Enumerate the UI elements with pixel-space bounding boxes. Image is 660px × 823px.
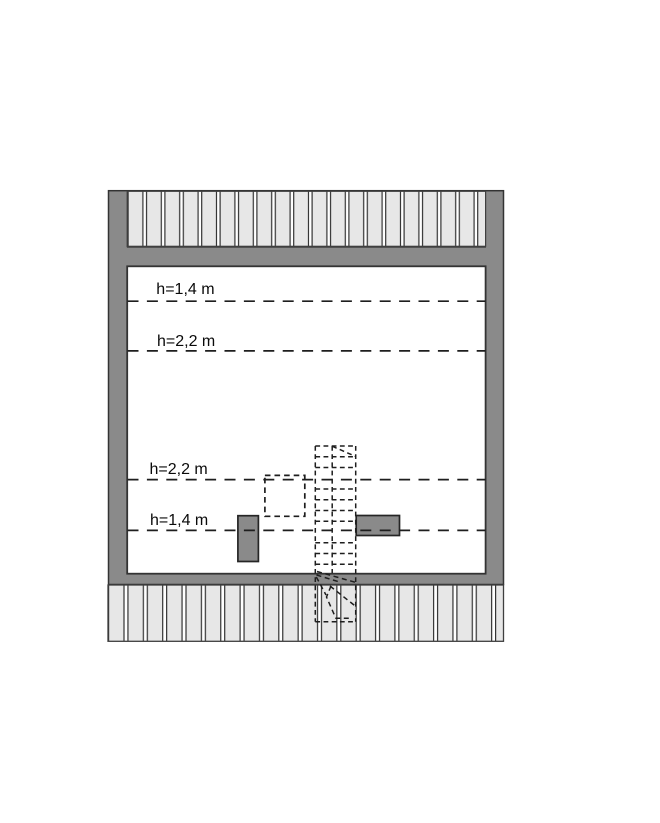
svg-text:h=1,4 m: h=1,4 m bbox=[156, 281, 214, 298]
svg-text:h=1,4 m: h=1,4 m bbox=[150, 512, 208, 529]
svg-text:h=2,2 m: h=2,2 m bbox=[150, 461, 208, 478]
svg-text:h=2,2 m: h=2,2 m bbox=[157, 333, 215, 350]
